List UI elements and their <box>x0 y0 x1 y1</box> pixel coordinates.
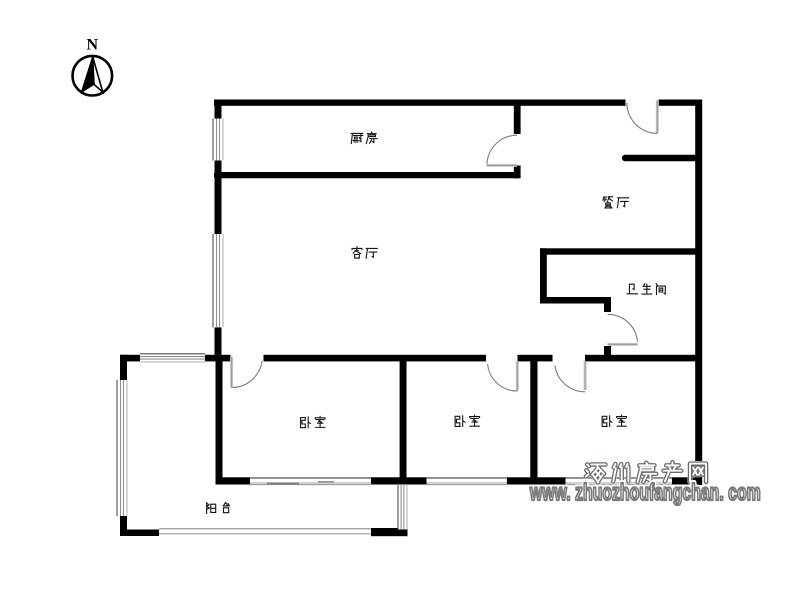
svg-text:www. zhuozhoufangchan. com: www. zhuozhoufangchan. com <box>529 480 761 506</box>
svg-text:N: N <box>87 37 99 54</box>
